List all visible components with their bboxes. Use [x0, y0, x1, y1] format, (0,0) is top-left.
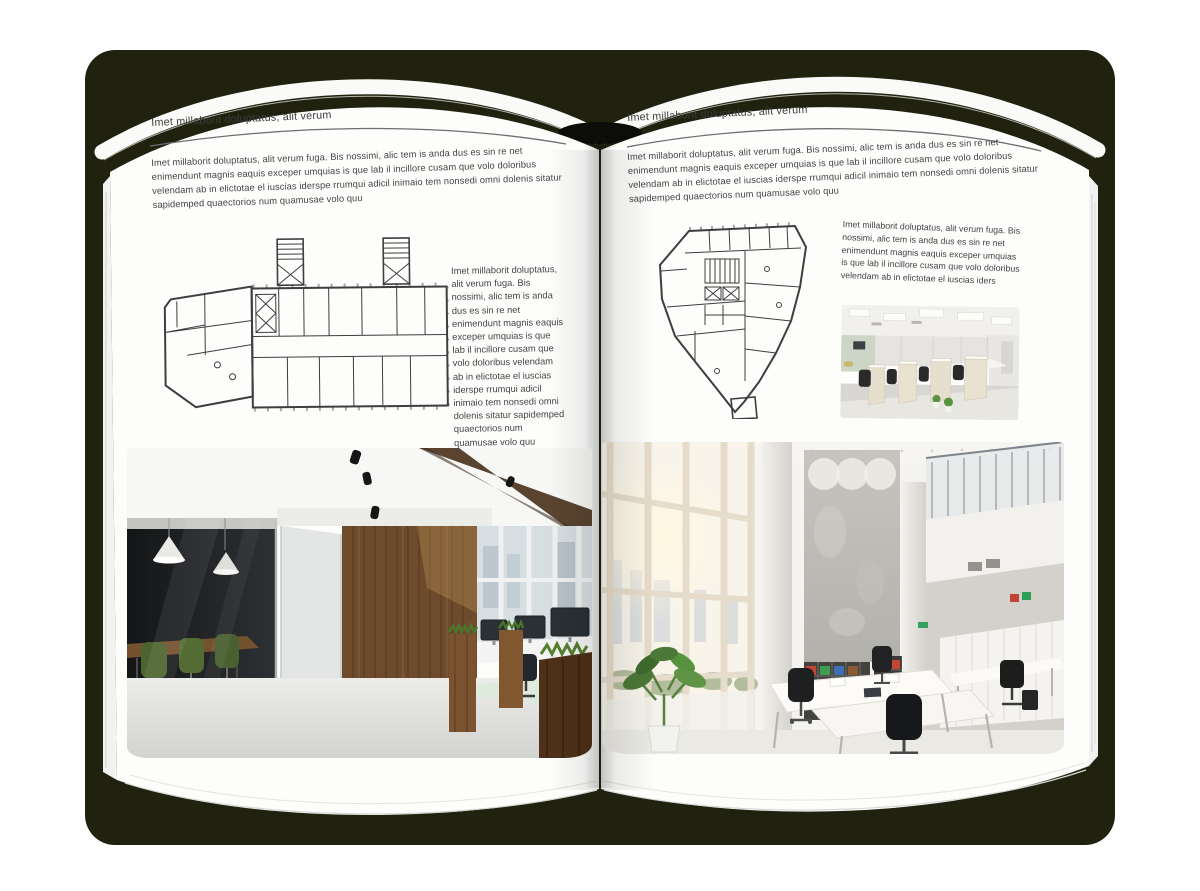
brochure-mockup-scene: Imet millaborit doluptatus, alit verum I…	[0, 0, 1200, 891]
mezzanine	[926, 442, 1064, 584]
left-floor-plan-figure	[156, 234, 450, 413]
right-wall-cabinets	[918, 564, 1064, 754]
glass-partition	[281, 526, 341, 700]
stair-core	[705, 259, 739, 283]
floor-plan-left-drawing	[156, 234, 450, 413]
elevator-core	[256, 294, 276, 332]
concrete-feature-wall	[804, 450, 900, 662]
main-block-outline	[252, 286, 448, 407]
glass-meeting-room	[127, 518, 277, 704]
spine-shadow-right	[601, 150, 656, 790]
right-page-side-text: Imet millaborit doluptatus, alit verum f…	[841, 218, 1023, 289]
right-page-photo	[602, 442, 1064, 754]
tower-outline	[660, 226, 806, 412]
bottom-stub	[731, 397, 757, 419]
right-page-small-photo	[840, 305, 1020, 420]
left-page-photo	[127, 448, 592, 758]
stair-tower-left	[277, 239, 303, 285]
spine-shadow-left	[548, 150, 600, 790]
stair-tower-right	[383, 238, 409, 284]
right-floor-plan-figure	[647, 221, 837, 419]
elevator-core	[705, 287, 739, 300]
